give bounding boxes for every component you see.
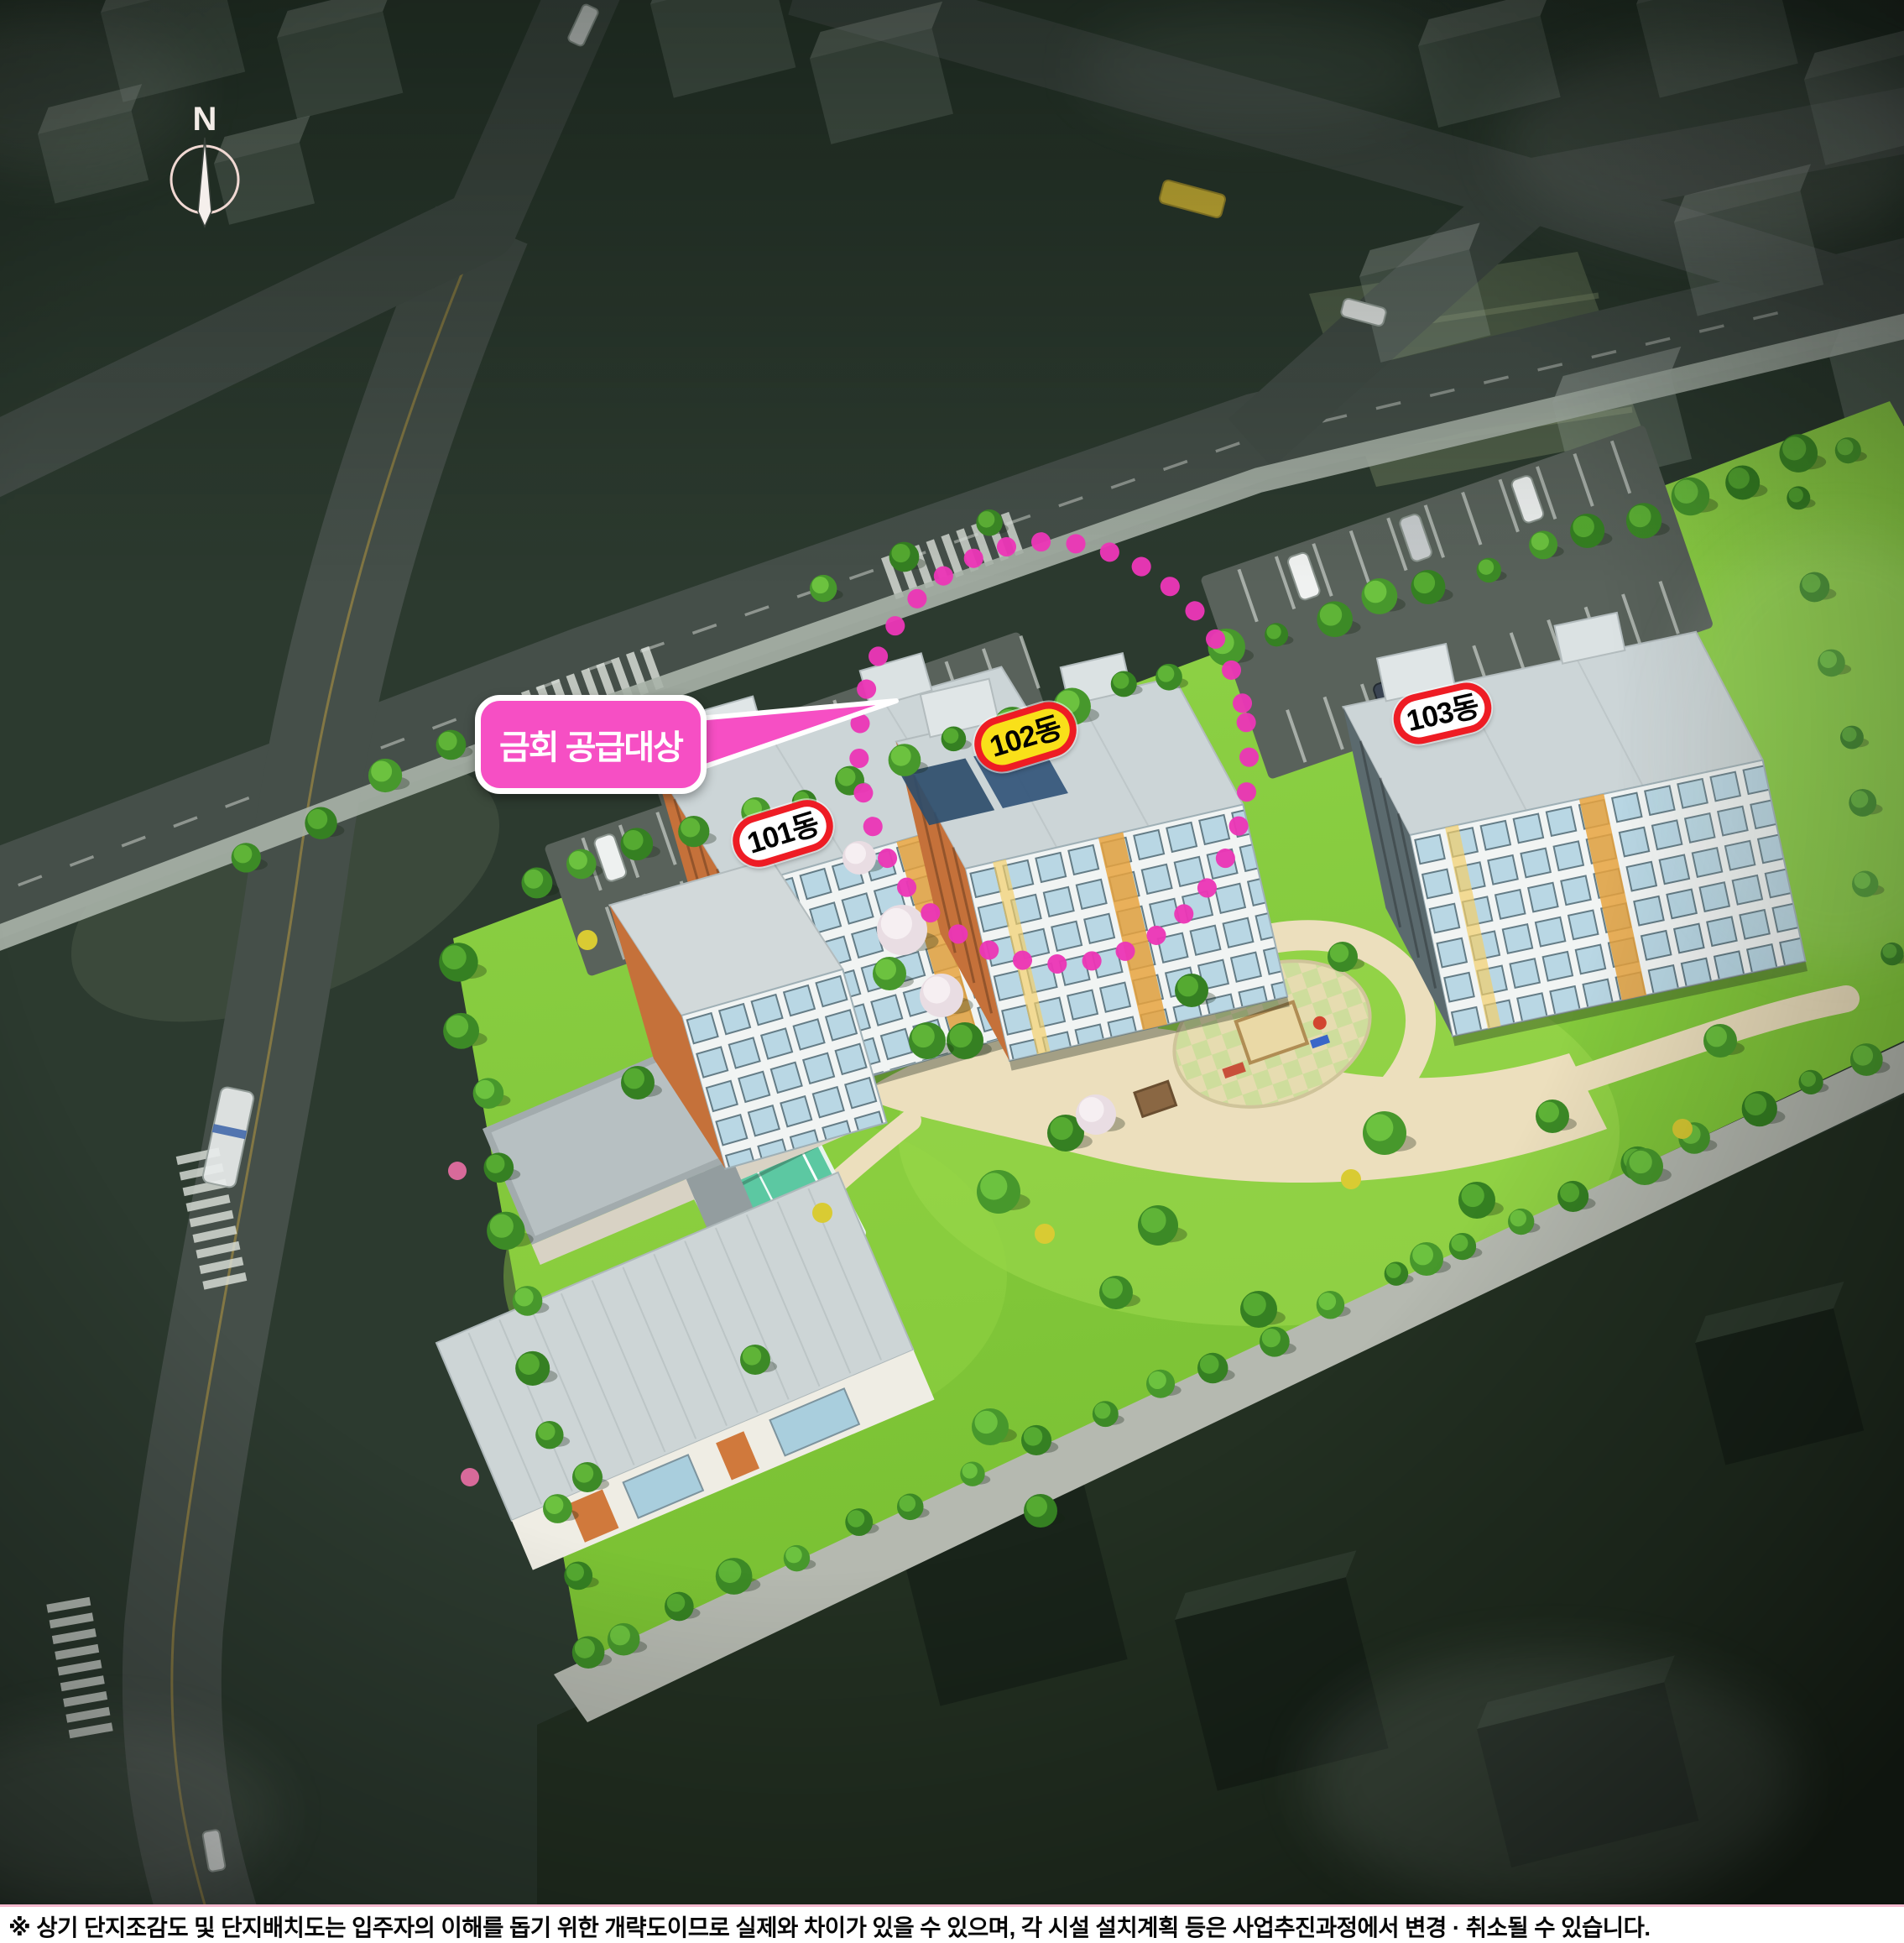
disclaimer-bar: ※ 상기 단지조감도 및 단지배치도는 입주자의 이해를 돕기 위한 개략도이므… (0, 1904, 1904, 1943)
vignette (0, 0, 1904, 1943)
disclaimer-text: ※ 상기 단지조감도 및 단지배치도는 입주자의 이해를 돕기 위한 개략도이므… (8, 1909, 1651, 1942)
badge-label: 103동 (1404, 691, 1481, 736)
badge-label: 101동 (743, 809, 822, 859)
site-plan-rendering: N 금회 공급대상 101동 102동 103동 ※ 상기 단지조감도 및 단지… (0, 0, 1904, 1943)
callout-label: 금회 공급대상 (499, 720, 682, 769)
compass-north-label: N (193, 101, 217, 138)
aerial-site-plan-canvas: N (0, 0, 1904, 1943)
supply-target-callout: 금회 공급대상 (475, 695, 707, 794)
badge-label: 102동 (986, 713, 1064, 762)
